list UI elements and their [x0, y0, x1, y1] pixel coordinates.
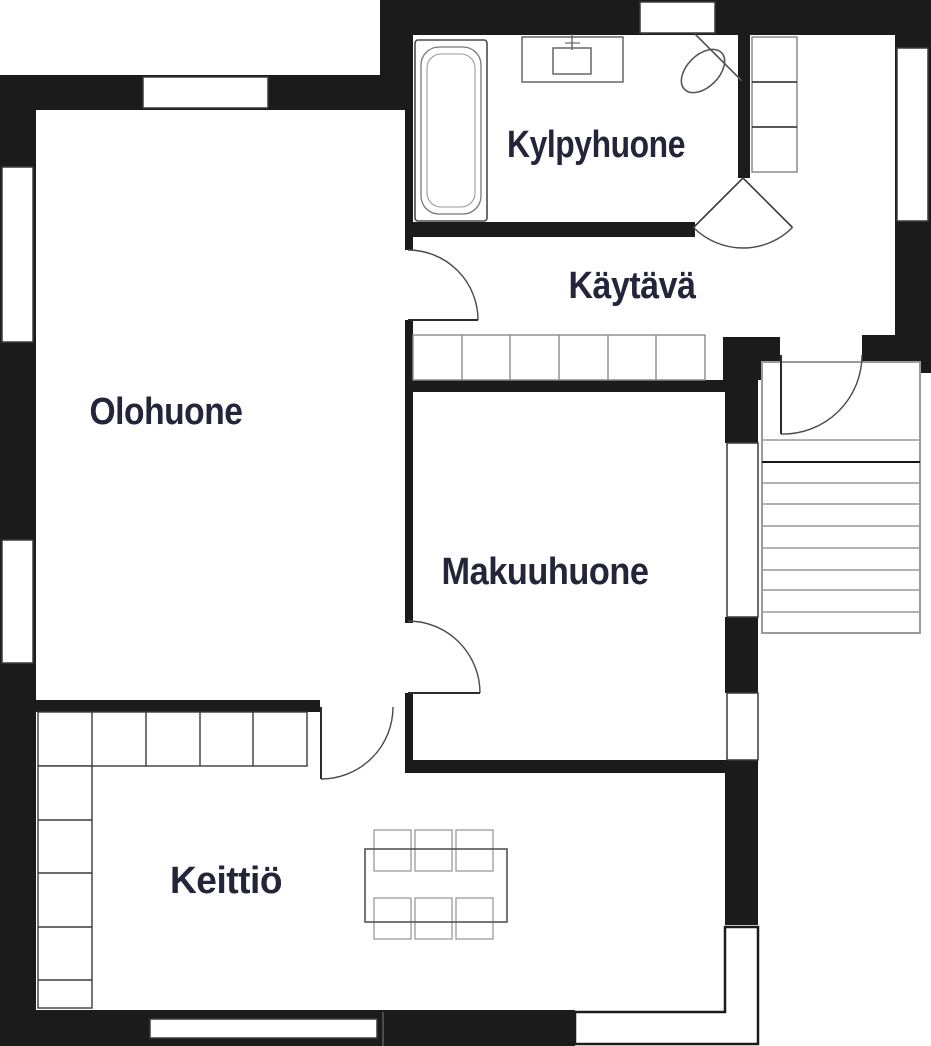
stairwell-outline: [762, 362, 920, 633]
door-bathroom: [694, 178, 793, 248]
window-right-entry: [897, 48, 928, 221]
dining-table-icon: [365, 849, 507, 922]
chair-icon: [415, 898, 452, 939]
label-hallway: Käytävä: [569, 265, 697, 307]
sink-icon: [522, 34, 623, 82]
label-living-room: Olohuone: [90, 391, 243, 433]
cabinet-icon: [752, 37, 797, 172]
wardrobe-icon: [413, 335, 705, 380]
floor-plan-drawing: Kylpyhuone Käytävä Olohuone Makuuhuone K…: [0, 0, 931, 1046]
door-living-hall: [408, 250, 478, 320]
window-bedroom-right: [727, 693, 758, 760]
window-left-lower: [2, 540, 33, 663]
door-bedroom: [408, 621, 480, 693]
wall-right-mid-a: [725, 373, 758, 443]
label-bathroom: Kylpyhuone: [507, 124, 685, 166]
window-stairwell: [727, 443, 758, 617]
chair-icon: [374, 830, 411, 871]
chair-icon: [415, 830, 452, 871]
wall-top-junction: [380, 0, 413, 110]
label-kitchen: Keittiö: [170, 860, 282, 902]
window-left-upper: [2, 167, 33, 342]
door-kitchen: [321, 707, 393, 779]
window-top-notch: [640, 2, 715, 33]
staircase: [762, 362, 920, 633]
wall-right-mid-b: [725, 617, 758, 693]
window-top: [143, 77, 268, 108]
floor-plan-canvas: Kylpyhuone Käytävä Olohuone Makuuhuone K…: [0, 0, 931, 1046]
room-labels: Kylpyhuone Käytävä Olohuone Makuuhuone K…: [90, 124, 697, 902]
wall-living-hall-upper: [405, 110, 413, 250]
chair-icon: [456, 830, 493, 871]
window-bottom: [150, 1019, 377, 1038]
wall-bedroom-top: [405, 380, 727, 392]
toilet-icon: [673, 34, 742, 101]
wall-living-hall-mid: [405, 320, 413, 623]
wall-bedroom-bottom: [405, 760, 727, 773]
wall-kitchen-top: [36, 700, 320, 712]
bathtub-icon: [415, 40, 487, 221]
wall-bathroom-bottom: [413, 222, 695, 237]
wall-right-mid-c: [725, 760, 758, 925]
wall-bathroom-right: [738, 35, 750, 178]
chair-icon: [456, 898, 493, 939]
chair-icon: [374, 898, 411, 939]
exterior-ledge: [575, 927, 758, 1044]
label-bedroom: Makuuhuone: [442, 551, 649, 593]
